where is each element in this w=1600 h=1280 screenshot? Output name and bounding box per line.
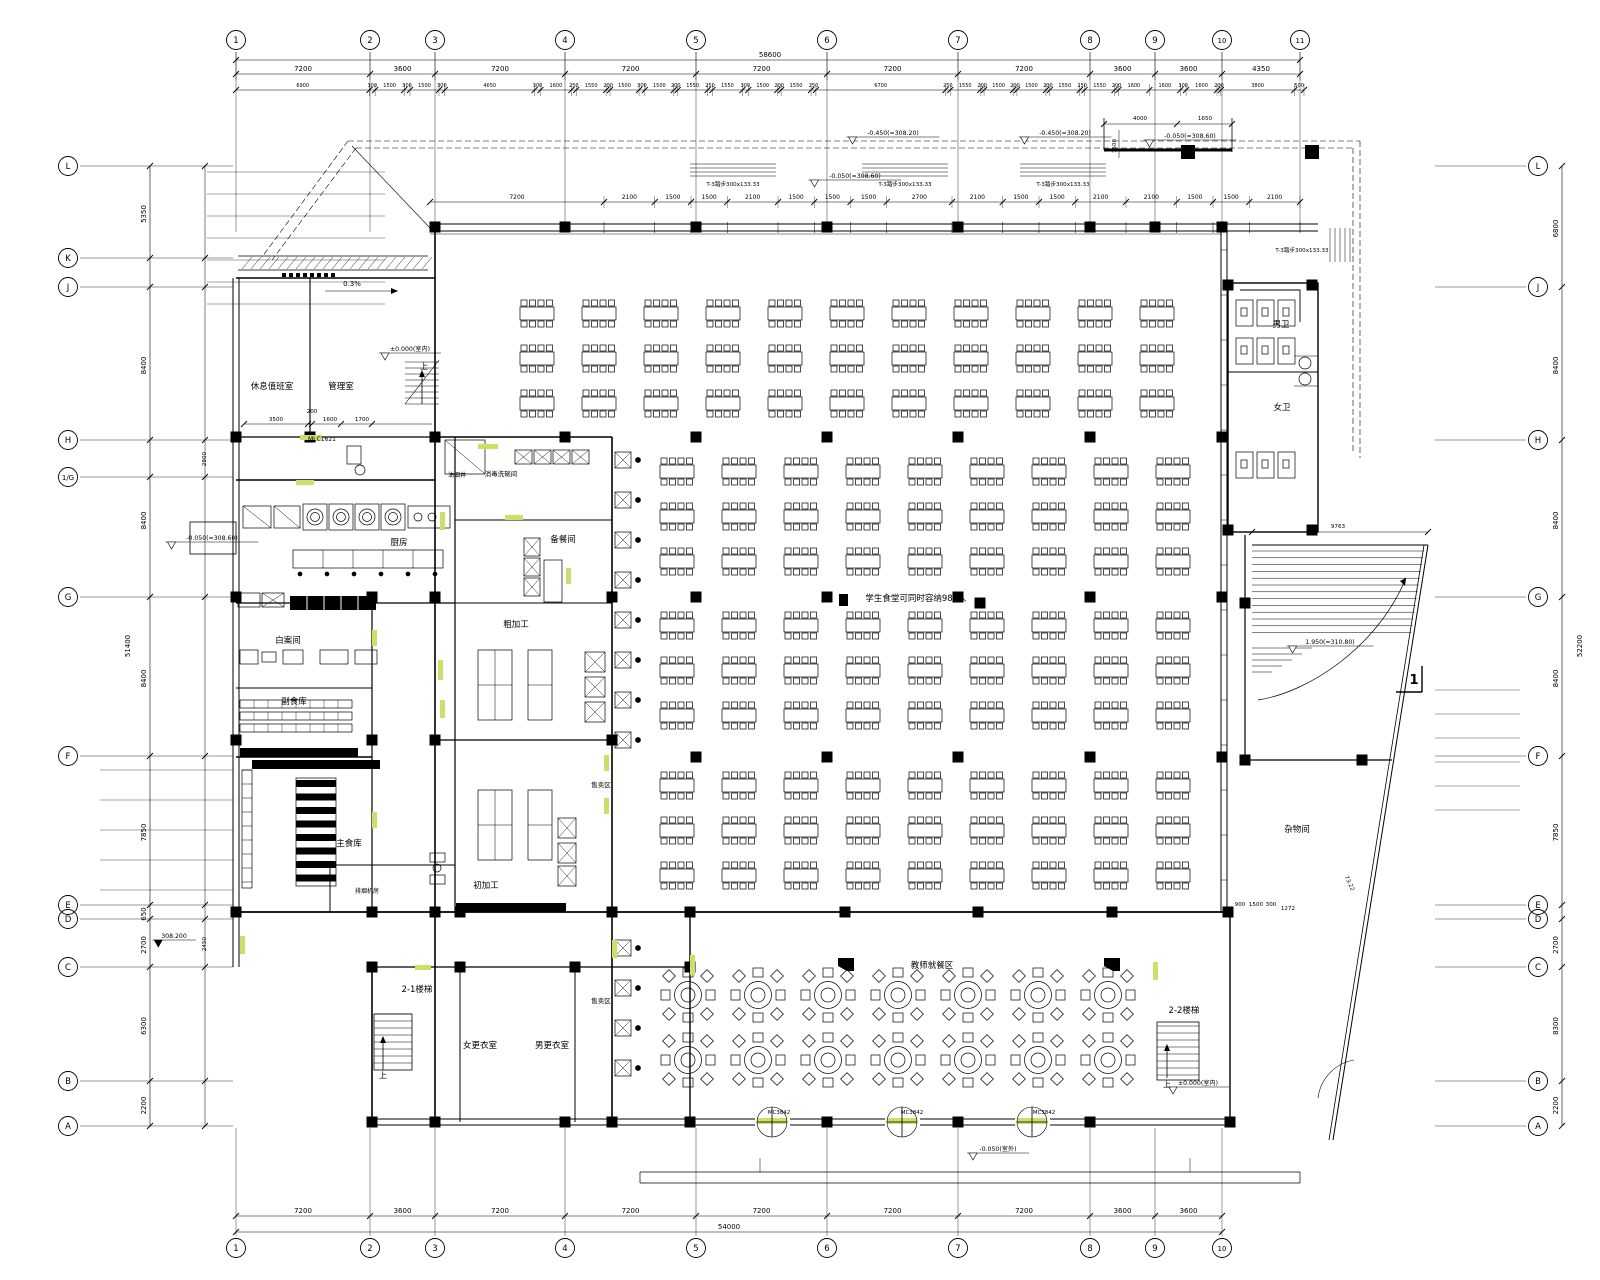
svg-text:1.950(=310.80): 1.950(=310.80)	[1305, 639, 1354, 646]
svg-text:7850: 7850	[1552, 824, 1560, 842]
svg-text:1500: 1500	[825, 194, 840, 201]
svg-text:T-3踏步300x133.33: T-3踏步300x133.33	[705, 180, 760, 188]
svg-text:男卫: 男卫	[1272, 320, 1290, 330]
svg-text:粗加工: 粗加工	[503, 619, 529, 630]
svg-text:1: 1	[1409, 673, 1418, 688]
svg-text:女更衣室: 女更衣室	[463, 1040, 498, 1051]
svg-text:消毒洗碗间: 消毒洗碗间	[485, 469, 518, 478]
svg-text:10: 10	[1218, 1245, 1227, 1253]
svg-text:300: 300	[1178, 83, 1188, 89]
svg-text:A: A	[1535, 1122, 1541, 1132]
svg-text:T-3踏步300x133.33: T-3踏步300x133.33	[877, 180, 932, 188]
svg-text:300: 300	[533, 83, 543, 89]
svg-text:1600: 1600	[1195, 83, 1208, 89]
svg-text:54000: 54000	[718, 1223, 740, 1231]
svg-text:油烟井: 油烟井	[448, 471, 466, 479]
svg-text:±0.000(室内): ±0.000(室内)	[1178, 1079, 1218, 1087]
svg-text:2200: 2200	[1552, 1097, 1560, 1115]
svg-text:7: 7	[955, 36, 960, 46]
svg-text:4350: 4350	[1252, 65, 1270, 73]
svg-text:售卖区: 售卖区	[591, 780, 611, 789]
svg-text:7200: 7200	[622, 1207, 640, 1215]
svg-text:1500: 1500	[1025, 83, 1038, 89]
svg-text:8: 8	[1087, 36, 1092, 46]
svg-text:1700: 1700	[355, 417, 370, 423]
svg-text:1550: 1550	[790, 83, 803, 89]
svg-text:L: L	[66, 162, 71, 172]
walls	[233, 222, 1428, 1140]
door-tags: MLC1621MC3842MC3842MC3842	[308, 436, 1055, 1116]
svg-text:8400: 8400	[140, 670, 148, 688]
svg-text:±0.000(室内): ±0.000(室内)	[390, 345, 430, 353]
svg-text:8400: 8400	[1552, 357, 1560, 375]
svg-text:1500: 1500	[701, 194, 716, 201]
svg-text:8300: 8300	[1552, 1017, 1560, 1035]
svg-text:1: 1	[233, 1244, 238, 1254]
svg-text:1/G: 1/G	[62, 474, 74, 482]
svg-text:MC3842: MC3842	[1033, 1110, 1056, 1116]
svg-text:52200: 52200	[1576, 635, 1584, 657]
svg-text:6900: 6900	[296, 83, 309, 89]
svg-text:1500: 1500	[992, 83, 1005, 89]
svg-text:250: 250	[1077, 83, 1087, 89]
svg-text:200: 200	[307, 409, 318, 415]
svg-text:C: C	[1535, 963, 1541, 973]
svg-text:H: H	[65, 436, 71, 446]
svg-text:D: D	[65, 915, 72, 925]
svg-text:2100: 2100	[1093, 194, 1108, 201]
dimensions: 5860072003600720072007200720072003600360…	[124, 51, 1584, 1235]
svg-text:308.200: 308.200	[161, 933, 187, 940]
svg-text:H: H	[1535, 436, 1541, 446]
svg-text:1500: 1500	[418, 83, 431, 89]
svg-text:6800: 6800	[1552, 220, 1560, 238]
svg-text:2700: 2700	[1552, 936, 1560, 954]
svg-text:3600: 3600	[1114, 1207, 1132, 1215]
door-highlights	[240, 435, 1158, 1137]
room-labels: 休息值班室管理室油烟井消毒洗碗间备餐间厨房白案间副食库主食库排烟机房粗加工初加工…	[251, 320, 1310, 1051]
svg-text:G: G	[1535, 593, 1542, 603]
svg-text:58600: 58600	[759, 51, 781, 59]
svg-text:1500: 1500	[665, 194, 680, 201]
svg-text:6: 6	[824, 1244, 829, 1254]
svg-text:2700: 2700	[140, 936, 148, 954]
svg-text:MC3842: MC3842	[768, 1110, 791, 1116]
svg-text:300: 300	[402, 83, 412, 89]
svg-text:-0.050(=308.60): -0.050(=308.60)	[829, 173, 881, 180]
svg-text:主食库: 主食库	[336, 838, 362, 849]
svg-text:5: 5	[693, 1244, 698, 1254]
svg-text:管理室: 管理室	[328, 381, 354, 392]
svg-text:1: 1	[233, 36, 238, 46]
svg-text:1500: 1500	[1249, 902, 1264, 908]
svg-text:300: 300	[368, 83, 378, 89]
svg-text:上: 上	[420, 362, 428, 371]
svg-text:1500: 1500	[653, 83, 666, 89]
svg-text:2100: 2100	[745, 194, 760, 201]
svg-text:1500: 1500	[1187, 194, 1202, 201]
svg-text:4: 4	[562, 1244, 567, 1254]
svg-text:2800: 2800	[202, 451, 208, 466]
svg-text:3600: 3600	[1114, 65, 1132, 73]
svg-text:-0.050(=308.60): -0.050(=308.60)	[1164, 133, 1216, 140]
svg-text:3600: 3600	[394, 1207, 412, 1215]
svg-text:4650: 4650	[483, 83, 496, 89]
svg-text:1272: 1272	[1281, 906, 1295, 912]
svg-text:1500: 1500	[756, 83, 769, 89]
columns	[231, 145, 1368, 1128]
svg-text:1500: 1500	[1112, 138, 1118, 153]
svg-text:MLC1621: MLC1621	[308, 436, 336, 443]
svg-text:250: 250	[809, 83, 819, 89]
svg-text:J: J	[66, 283, 70, 293]
svg-text:1550: 1550	[585, 83, 598, 89]
svg-text:3500: 3500	[269, 417, 284, 423]
svg-text:A: A	[65, 1122, 71, 1132]
svg-text:2200: 2200	[140, 1097, 148, 1115]
svg-text:7: 7	[955, 1244, 960, 1254]
svg-text:白案间: 白案间	[275, 635, 301, 646]
svg-text:7200: 7200	[753, 1207, 771, 1215]
svg-text:1600: 1600	[1128, 83, 1141, 89]
svg-text:1600: 1600	[1158, 83, 1171, 89]
svg-text:7200: 7200	[294, 1207, 312, 1215]
svg-text:1500: 1500	[383, 83, 396, 89]
kitchen-equipment	[238, 300, 1318, 1076]
svg-text:10: 10	[1218, 37, 1227, 45]
svg-text:售卖区: 售卖区	[591, 996, 611, 1005]
svg-text:7200: 7200	[622, 65, 640, 73]
svg-text:备餐间: 备餐间	[550, 534, 576, 545]
svg-text:J: J	[1536, 283, 1540, 293]
svg-text:1500: 1500	[861, 194, 876, 201]
svg-text:-0.050(=308.60): -0.050(=308.60)	[186, 535, 238, 542]
svg-text:1550: 1550	[686, 83, 699, 89]
svg-text:250: 250	[943, 83, 953, 89]
svg-text:2100: 2100	[970, 194, 985, 201]
svg-text:杂物间: 杂物间	[1284, 824, 1310, 835]
svg-text:上: 上	[1163, 1080, 1171, 1089]
svg-text:D: D	[1535, 915, 1542, 925]
svg-text:7200: 7200	[491, 1207, 509, 1215]
svg-text:1500: 1500	[1013, 194, 1028, 201]
svg-text:1550: 1550	[721, 83, 734, 89]
svg-text:1600: 1600	[323, 417, 338, 423]
svg-text:男更衣室: 男更衣室	[535, 1040, 570, 1051]
svg-text:-0.450(=308.20): -0.450(=308.20)	[1039, 130, 1091, 137]
svg-text:1500: 1500	[618, 83, 631, 89]
svg-text:1500: 1500	[1223, 194, 1238, 201]
svg-text:T-3踏步300x133.33: T-3踏步300x133.33	[1035, 180, 1090, 188]
annotations: 0.3%上上上1T-3踏步300x133.33T-3踏步300x133.33T-…	[325, 180, 1419, 1089]
svg-text:3600: 3600	[1180, 1207, 1198, 1215]
svg-text:9: 9	[1152, 36, 1157, 46]
svg-text:500: 500	[1294, 83, 1304, 89]
stairs	[374, 360, 1424, 1098]
svg-text:休息值班室: 休息值班室	[251, 381, 294, 392]
svg-text:C: C	[65, 963, 71, 973]
svg-text:B: B	[65, 1077, 71, 1087]
svg-text:8400: 8400	[1552, 670, 1560, 688]
svg-text:11: 11	[1296, 37, 1305, 45]
svg-text:2100: 2100	[622, 194, 637, 201]
svg-text:K: K	[65, 254, 71, 264]
svg-text:3: 3	[432, 1244, 437, 1254]
svg-text:2: 2	[367, 1244, 372, 1254]
teacher-tables	[661, 958, 1135, 1087]
svg-text:51400: 51400	[124, 635, 132, 657]
svg-text:4000: 4000	[1133, 116, 1148, 122]
svg-text:学生食堂可同时容纳984人: 学生食堂可同时容纳984人	[865, 593, 967, 604]
svg-text:女卫: 女卫	[1273, 402, 1291, 413]
svg-text:3600: 3600	[1180, 65, 1198, 73]
svg-text:1550: 1550	[1058, 83, 1071, 89]
svg-text:73.22: 73.22	[1343, 875, 1355, 892]
svg-text:3: 3	[432, 36, 437, 46]
svg-text:300: 300	[1266, 902, 1277, 908]
svg-text:副食库: 副食库	[281, 696, 307, 707]
svg-text:7200: 7200	[884, 1207, 902, 1215]
svg-text:7850: 7850	[140, 824, 148, 842]
svg-text:2-1楼梯: 2-1楼梯	[402, 984, 433, 995]
svg-text:8: 8	[1087, 1244, 1092, 1254]
svg-text:0.3%: 0.3%	[343, 280, 361, 288]
svg-text:MC3842: MC3842	[901, 1110, 924, 1116]
svg-text:3800: 3800	[1251, 83, 1264, 89]
svg-text:B: B	[1535, 1077, 1541, 1087]
svg-text:7200: 7200	[1015, 1207, 1033, 1215]
svg-text:2: 2	[367, 36, 372, 46]
svg-text:300: 300	[637, 83, 647, 89]
svg-text:2450: 2450	[202, 936, 208, 951]
svg-text:初加工: 初加工	[473, 880, 499, 891]
svg-text:7200: 7200	[491, 65, 509, 73]
svg-text:G: G	[65, 593, 72, 603]
svg-text:-0.450(=308.20): -0.450(=308.20)	[867, 130, 919, 137]
svg-text:300: 300	[741, 83, 751, 89]
drawing-sheet: 123456789101112345678910LKJH1/GGFEDCBALJ…	[0, 0, 1600, 1280]
svg-text:8400: 8400	[140, 512, 148, 530]
svg-text:F: F	[1536, 752, 1541, 762]
svg-text:2700: 2700	[912, 194, 927, 201]
svg-text:4: 4	[562, 36, 567, 46]
svg-text:1500: 1500	[788, 194, 803, 201]
svg-text:排烟机房: 排烟机房	[355, 887, 379, 895]
svg-text:7200: 7200	[1015, 65, 1033, 73]
svg-text:300: 300	[437, 83, 447, 89]
svg-text:1550: 1550	[1093, 83, 1106, 89]
svg-text:T-3踏步300x133.33: T-3踏步300x133.33	[1274, 246, 1329, 254]
svg-text:6300: 6300	[140, 1017, 148, 1035]
svg-text:2-2楼梯: 2-2楼梯	[1169, 1005, 1200, 1016]
svg-text:9: 9	[1152, 1244, 1157, 1254]
svg-text:5350: 5350	[140, 205, 148, 223]
svg-text:教师就餐区: 教师就餐区	[911, 960, 954, 971]
svg-text:7200: 7200	[884, 65, 902, 73]
svg-text:250: 250	[569, 83, 579, 89]
svg-text:250: 250	[705, 83, 715, 89]
floor-plan: 123456789101112345678910LKJH1/GGFEDCBALJ…	[0, 0, 1600, 1280]
svg-text:L: L	[1536, 162, 1541, 172]
svg-text:1600: 1600	[550, 83, 563, 89]
svg-text:7200: 7200	[294, 65, 312, 73]
svg-text:2100: 2100	[1267, 194, 1282, 201]
svg-text:-0.050(室外): -0.050(室外)	[979, 1145, 1016, 1153]
svg-text:900: 900	[1235, 902, 1246, 908]
svg-text:2100: 2100	[1144, 194, 1159, 201]
svg-text:F: F	[66, 752, 71, 762]
svg-text:6700: 6700	[874, 83, 887, 89]
svg-text:650: 650	[140, 907, 148, 920]
svg-text:厨房: 厨房	[390, 537, 407, 548]
svg-text:9763: 9763	[1331, 524, 1346, 530]
svg-text:6: 6	[824, 36, 829, 46]
svg-text:7200: 7200	[753, 65, 771, 73]
svg-text:1650: 1650	[1198, 116, 1213, 122]
svg-text:1500: 1500	[1049, 194, 1064, 201]
svg-text:上: 上	[379, 1071, 387, 1080]
svg-text:8400: 8400	[1552, 512, 1560, 530]
svg-text:7200: 7200	[509, 194, 524, 201]
svg-text:1550: 1550	[959, 83, 972, 89]
svg-text:3600: 3600	[394, 65, 412, 73]
svg-text:5: 5	[693, 36, 698, 46]
svg-text:8400: 8400	[140, 357, 148, 375]
